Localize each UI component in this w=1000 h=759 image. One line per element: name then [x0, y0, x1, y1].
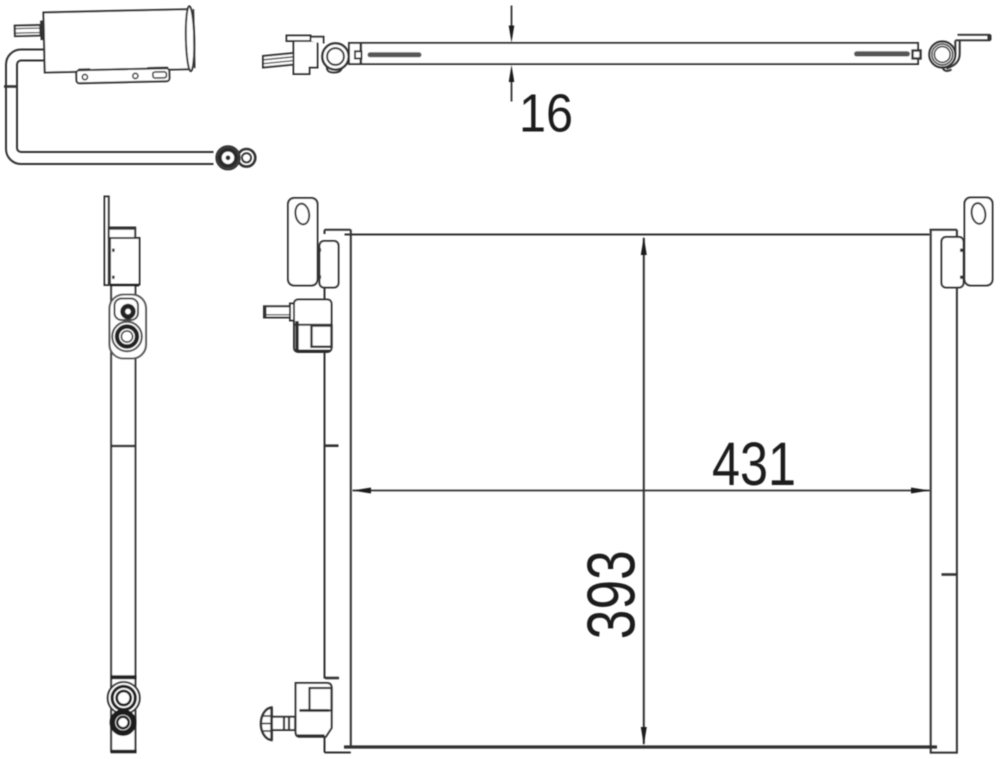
svg-text:431: 431 [712, 430, 796, 498]
svg-text:393: 393 [574, 550, 650, 639]
svg-text:16: 16 [519, 84, 573, 144]
